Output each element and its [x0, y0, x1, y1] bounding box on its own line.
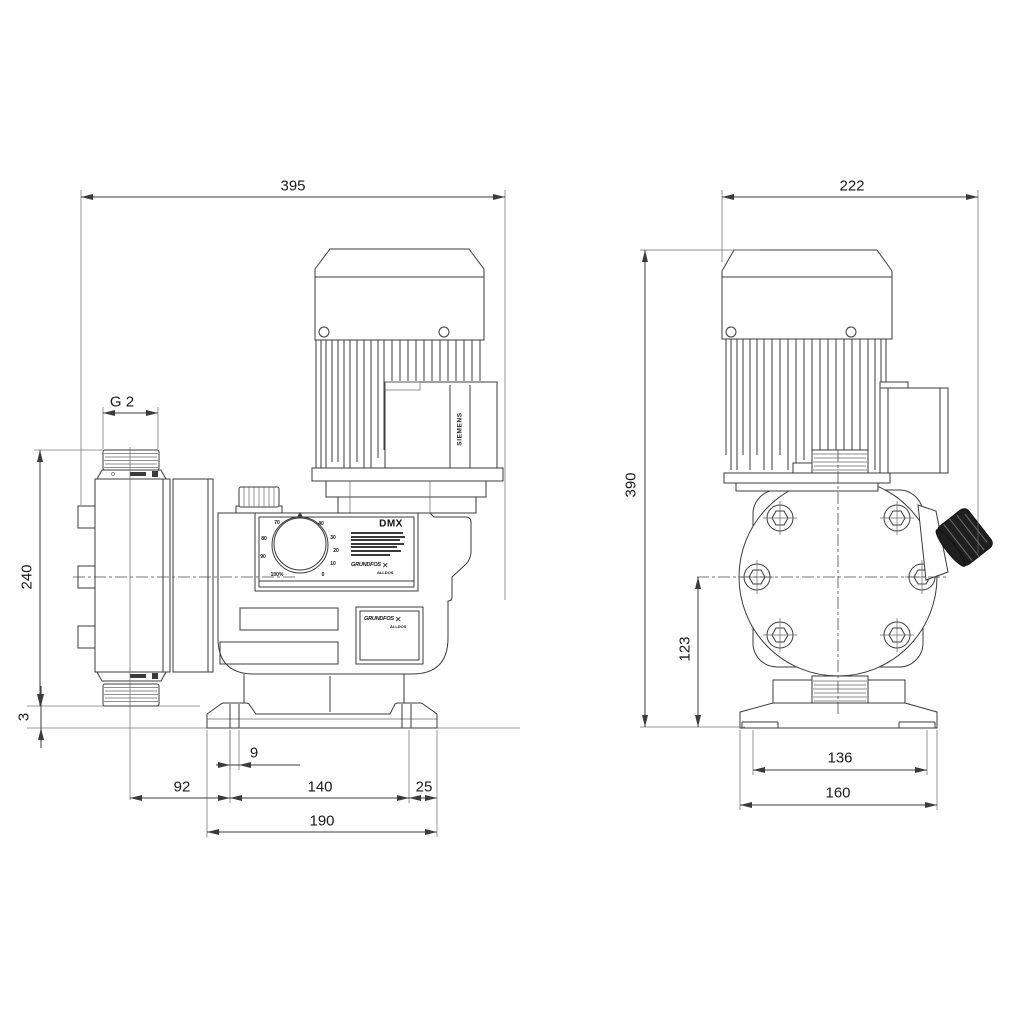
dial-label-80: 80 [261, 536, 267, 542]
side-view [27, 190, 520, 837]
nameplate-logo: GRUNDFOS ✕ ALLDOS [364, 616, 406, 629]
front-view [640, 190, 995, 810]
dim-side-thread-size: G 2 [110, 394, 134, 411]
side-terminal-box [385, 382, 497, 477]
dial-label-10: 10 [330, 561, 336, 567]
side-dosing-head [78, 450, 213, 706]
dim-front-overall-width: 222 [839, 178, 864, 195]
motor-brand-label: SIEMENS [457, 412, 464, 445]
front-motor [722, 250, 948, 491]
dim-side-edge-offset: 25 [416, 779, 433, 796]
dial-label-20: 20 [333, 548, 339, 554]
dim-side-base-width: 190 [309, 813, 334, 830]
logo-subtext: ALLDOS [377, 571, 393, 575]
dim-side-head-offset: 92 [174, 779, 191, 796]
dim-side-slot-width: 9 [250, 745, 258, 762]
technical-drawing-dmx-pump: 395 G 2 240 3 9 92 140 25 190 222 390 12… [0, 0, 1024, 1024]
dial-label-40: 40 [318, 521, 324, 527]
side-body [218, 487, 471, 712]
logo-text: GRUNDFOS [364, 617, 394, 623]
model-label: DMX [379, 519, 403, 530]
side-base [207, 674, 437, 728]
dial-label-90: 90 [260, 554, 266, 560]
dim-front-base-width: 160 [825, 785, 850, 802]
drawing-canvas [0, 0, 1024, 1024]
dim-front-center-height: 123 [677, 636, 694, 661]
dim-side-foot-spacing: 140 [307, 779, 332, 796]
logo-text: GRUNDFOS [351, 563, 381, 569]
dim-side-overall-width: 395 [280, 178, 305, 195]
panel-logo: GRUNDFOS ✕ ALLDOS [351, 562, 393, 575]
dial-label-100: 100% [271, 572, 284, 578]
dial-label-30: 30 [330, 535, 336, 541]
dim-side-head-height: 240 [19, 564, 36, 589]
side-motor [312, 249, 503, 513]
dim-side-base-gap: 3 [16, 713, 33, 721]
dim-front-overall-height: 390 [623, 472, 640, 497]
dial-label-0: 0 [322, 572, 325, 578]
pump-logo-icon: ✕ [395, 616, 402, 624]
stroke-length-knob[interactable] [918, 505, 995, 580]
dim-front-slot-spacing: 136 [827, 750, 852, 767]
side-bottom-thread [103, 684, 159, 706]
front-base [740, 676, 937, 728]
side-top-thread [103, 450, 159, 470]
logo-subtext: ALLDOS [390, 625, 406, 629]
panel-microtext [351, 532, 407, 556]
front-terminal-box [880, 382, 948, 473]
dial-label-70: 70 [274, 520, 280, 526]
pump-logo-icon: ✕ [382, 562, 389, 570]
